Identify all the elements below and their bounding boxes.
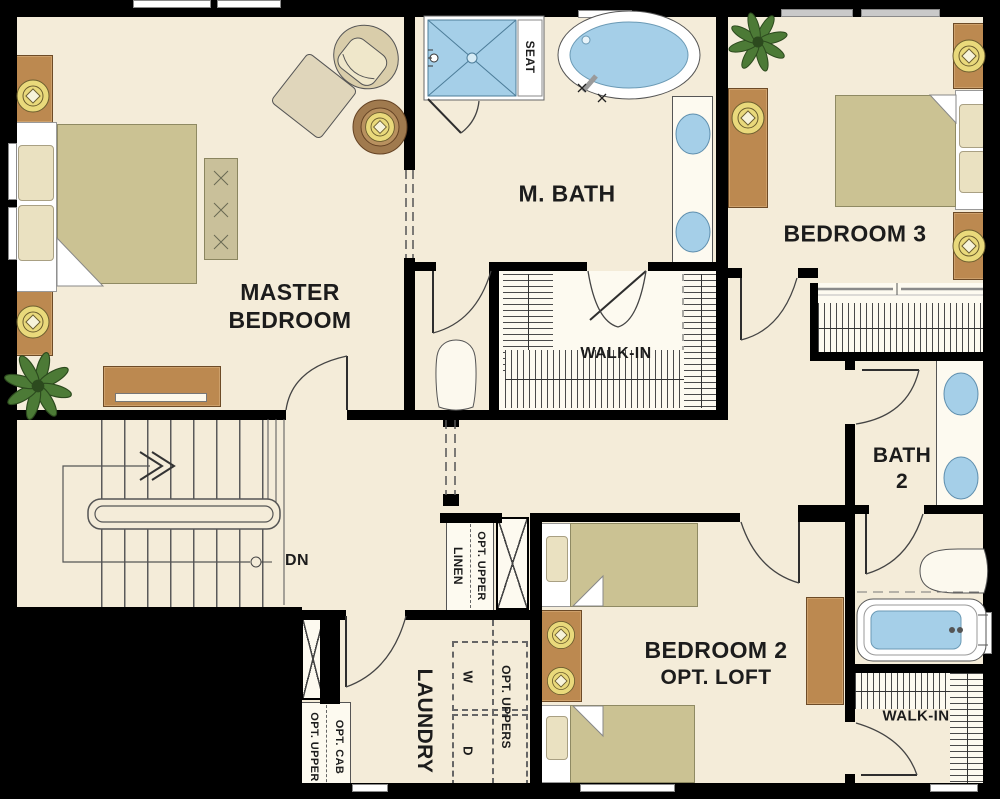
bath2-label: BATH 2	[873, 443, 931, 495]
stairs	[63, 419, 284, 605]
side-table	[353, 100, 407, 154]
dn-marker-icon	[251, 557, 261, 567]
washer-label: W	[461, 671, 476, 684]
bath2-tub	[857, 592, 988, 661]
floor-plan: MASTER BEDROOM M. BATH BEDROOM 3 WALK-IN…	[0, 0, 1000, 799]
linen-label: LINEN	[451, 547, 465, 585]
opt-uppers-label: OPT. UPPERS	[499, 665, 513, 749]
sink	[676, 114, 978, 499]
linen-opt-upper-label: OPT. UPPER	[475, 531, 487, 600]
laundry-label: LAUNDRY	[412, 669, 436, 774]
seat-label: SEAT	[523, 41, 537, 74]
bedroom3-label: BEDROOM 3	[784, 221, 927, 248]
toilet	[436, 340, 476, 410]
master-tub	[558, 11, 700, 102]
toilet	[920, 549, 988, 593]
dryer-label: D	[461, 746, 476, 756]
opt-cab-label: OPT. CAB	[333, 720, 345, 775]
bifold-door	[818, 283, 983, 295]
bed-fold	[57, 95, 956, 736]
walkin2-label: WALK-IN	[883, 708, 950, 725]
handrail	[88, 499, 280, 529]
opt-upper-label: OPT. UPPER	[308, 712, 320, 781]
dresser-x-marks	[214, 171, 228, 249]
lamp-icon	[17, 40, 985, 695]
dn-label: DN	[285, 552, 309, 570]
master-walkin-label: WALK-IN	[580, 345, 651, 363]
master-bedroom-label: MASTER BEDROOM	[229, 278, 352, 334]
master-bath-label: M. BATH	[519, 181, 616, 208]
cased-opening	[404, 170, 683, 495]
bedroom2-label: BEDROOM 2 OPT. LOFT	[645, 636, 788, 692]
